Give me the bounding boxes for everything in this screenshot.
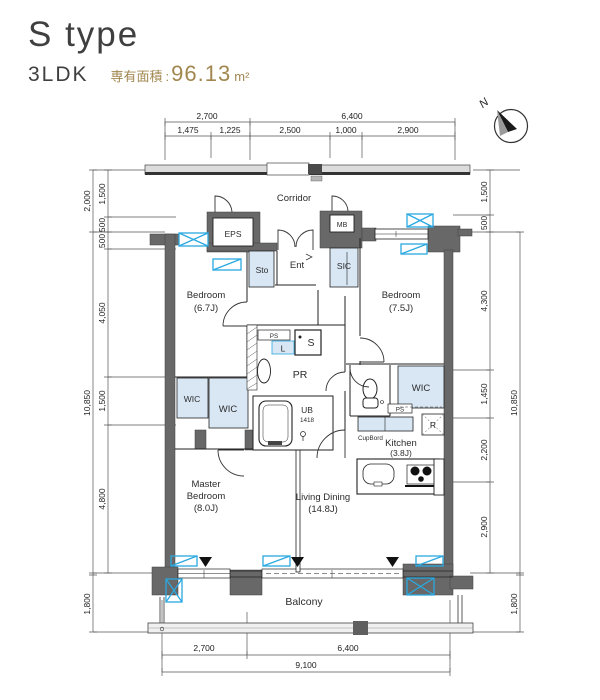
dim-top-2500: 2,500 (279, 125, 301, 135)
crossed-window-icon-ne (407, 214, 433, 227)
dim-left-500a: 500 (97, 218, 107, 232)
slash-window-icon-ld1 (263, 556, 290, 566)
kitchen-counter (357, 459, 444, 495)
label-bedroom1-name: Bedroom (187, 290, 226, 301)
label-wic-right: WIC (412, 383, 431, 394)
toilet (363, 379, 384, 408)
dim-right-1450: 1,450 (479, 383, 489, 405)
dim-right-1500: 1,500 (479, 181, 489, 203)
dim-right-2200: 2,200 (479, 439, 489, 461)
label-cupboard: CupBord (358, 435, 383, 442)
label-living-name: Living Dining (296, 492, 350, 503)
dim-top-2900: 2,900 (397, 125, 419, 135)
dim-left-2000: 2,000 (82, 190, 92, 212)
dim-top-6400: 6,400 (341, 111, 363, 121)
dim-top-1475: 1,475 (177, 125, 199, 135)
dim-right-4300: 4,300 (479, 290, 489, 312)
dim-bottom-9100: 9,100 (295, 660, 317, 670)
bathroom-unit (253, 396, 333, 450)
label-pr: PR (293, 369, 308, 381)
compass-north-label: N (477, 96, 491, 111)
label-master-l1: Master (191, 479, 220, 490)
label-living-size: (14.8J) (308, 504, 338, 515)
label-mb: MB (337, 222, 348, 229)
label-ent: Ent (290, 260, 305, 271)
dim-right-10850: 10,850 (509, 390, 519, 416)
master-ld-wall (296, 450, 300, 572)
compass-icon: N (477, 96, 527, 143)
dim-right-500: 500 (479, 216, 489, 230)
label-balcony: Balcony (285, 596, 323, 608)
dim-top-1225: 1,225 (219, 125, 241, 135)
label-master-l2: Bedroom (187, 491, 226, 502)
dim-left-1500b: 1,500 (97, 390, 107, 412)
dim-left-10850: 10,850 (82, 390, 92, 416)
label-bedroom1-size: (6.7J) (194, 303, 218, 314)
dim-right-1800: 1,800 (509, 593, 519, 615)
label-ps-center: PS (270, 333, 278, 340)
dim-left-4050: 4,050 (97, 302, 107, 324)
label-bedroom2-name: Bedroom (382, 290, 421, 301)
floorplan-page: S type 3LDK 専有面積 : 96.13 m² (0, 0, 600, 700)
label-ub: UB (301, 405, 313, 415)
dim-left-4800: 4,800 (97, 488, 107, 510)
dim-top-2700: 2,700 (196, 111, 218, 121)
label-fridge: R (430, 420, 436, 430)
label-wic-left: WIC (184, 394, 201, 404)
dim-bottom-2700: 2,700 (193, 643, 215, 653)
dim-top-1000: 1,000 (335, 125, 357, 135)
vanity-sink (258, 359, 271, 383)
label-sic: SIC (337, 261, 351, 271)
label-eps: EPS (224, 229, 241, 239)
label-ps-right: PS (396, 407, 404, 414)
dim-right-2900: 2,900 (479, 516, 489, 538)
slash-window-icon-bed2 (401, 244, 427, 254)
label-ub-size: 1418 (300, 417, 315, 424)
label-laundry: L (281, 344, 286, 354)
label-corridor: Corridor (277, 193, 311, 204)
label-kitchen-size: (3.8J) (390, 448, 412, 458)
dim-bottom-6400: 6,400 (337, 643, 359, 653)
dim-left-1800: 1,800 (82, 593, 92, 615)
label-washer: S (307, 337, 314, 349)
label-wic-mid: WIC (219, 404, 238, 415)
dim-left-1500a: 1,500 (97, 183, 107, 205)
dim-left-500b: 500 (97, 234, 107, 248)
label-sto: Sto (256, 265, 269, 275)
slash-window-icon-bed1 (213, 259, 241, 270)
label-master-size: (8.0J) (194, 503, 218, 514)
pipe-space (247, 325, 257, 390)
floor-plan-drawing: 2,700 6,400 1,475 1,225 2,500 1,000 2,90… (0, 0, 600, 700)
corridor-rail (145, 163, 470, 181)
label-bedroom2-size: (7.5J) (389, 303, 413, 314)
